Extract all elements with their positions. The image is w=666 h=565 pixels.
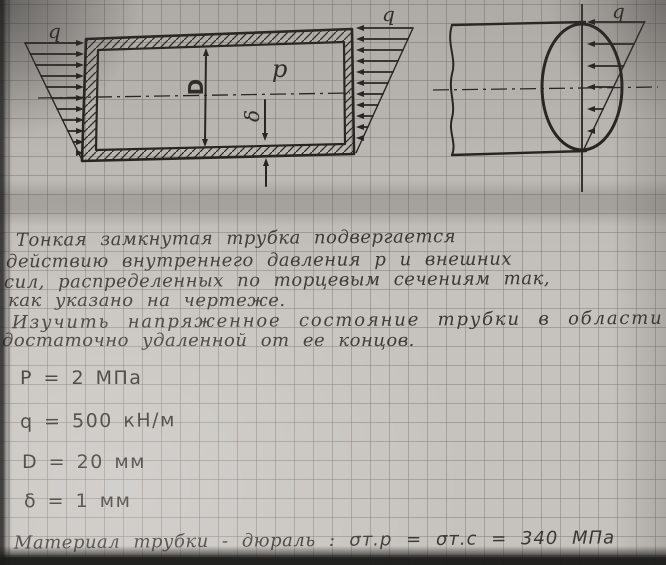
side-load-label: q [612,0,625,23]
material-yield-equation: σт.р = σт.с = 340 МПа [349,527,615,550]
body-top-line [452,22,585,25]
material-prose: Материал трубки - дюраль : [14,530,336,554]
statement-line-6: достаточно удаленной от ее концов. [2,330,415,351]
front-view: q q p D δ [25,2,413,186]
diameter-label: D [184,79,208,96]
pressure-label: p [272,55,287,83]
given-end-load: q = 500 кН/м [20,409,176,433]
thickness-label: δ [240,110,264,122]
given-pressure: P = 2 МПа [20,367,142,389]
graph-paper-sheet: q q p D δ q Тонкая замкнутая трубка подв… [0,0,666,565]
left-load-arrows [25,40,84,156]
given-wall-thickness: δ = 1 мм [24,490,131,512]
right-load-label: q [382,2,395,26]
left-load-label: q [48,19,61,43]
side-load-arrows [587,19,645,134]
body-bottom-line [452,151,586,155]
right-load-arrows [356,25,413,141]
statement-line-1: Тонкая замкнутая трубка подвергается [16,226,456,251]
side-view: q [433,0,658,192]
given-diameter: D = 20 мм [22,451,146,473]
right-load-slant [356,28,413,153]
break-line [450,25,453,155]
statement-line-4: как указано на чертеже. [8,290,286,311]
side-centerline [433,87,658,90]
